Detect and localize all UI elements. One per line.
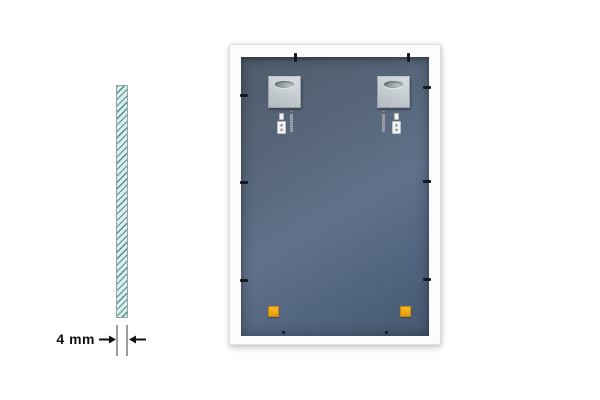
corner-bumper-left: [268, 306, 279, 317]
hanging-plate-left: [268, 76, 301, 108]
retainer-clip-right-1: [423, 86, 431, 89]
wall-anchor-right: [392, 113, 401, 134]
retainer-clip-bottom-left: [282, 331, 285, 334]
anchor-body: [392, 121, 401, 134]
retainer-clip-left-3: [240, 279, 248, 282]
anchor-cap: [394, 113, 399, 120]
screw-right: [382, 110, 385, 132]
keyhole-slot-icon: [384, 81, 403, 88]
anchor-cap: [279, 113, 284, 120]
wall-anchor-left: [277, 113, 286, 134]
hanging-plate-right: [377, 76, 410, 108]
dimension-label: 4 mm: [40, 331, 95, 347]
arrow-left-icon: [129, 335, 146, 344]
back-panel: [241, 57, 429, 336]
arrow-right-icon: [99, 335, 116, 344]
retainer-clip-top-left: [294, 53, 297, 62]
extension-line-right: [126, 325, 128, 356]
keyhole-slot-icon: [275, 81, 294, 88]
corner-bumper-right: [400, 306, 411, 317]
anchor-body: [277, 121, 286, 134]
retainer-clip-left-2: [240, 181, 248, 184]
extension-line-left: [116, 325, 118, 356]
product-image-canvas: 4 mm: [0, 0, 600, 400]
mirror-frame: [229, 44, 441, 345]
screw-left: [290, 110, 293, 132]
retainer-clip-left-1: [240, 94, 248, 97]
retainer-clip-top-right: [407, 53, 410, 62]
retainer-clip-right-3: [423, 278, 431, 281]
glass-cross-section: [116, 85, 128, 318]
retainer-clip-bottom-right: [385, 331, 388, 334]
retainer-clip-right-2: [423, 180, 431, 183]
